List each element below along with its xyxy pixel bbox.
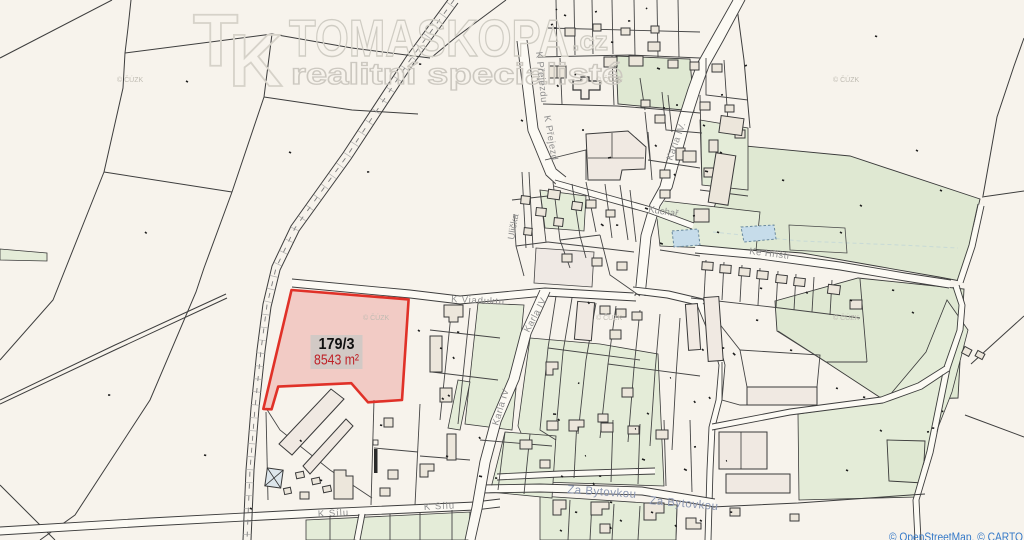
svg-text:© ČÚZK: © ČÚZK — [596, 75, 622, 84]
svg-text:© ČÚZK: © ČÚZK — [117, 75, 143, 84]
svg-text:179/3: 179/3 — [319, 336, 355, 353]
svg-text:© ČÚZK: © ČÚZK — [363, 313, 389, 322]
svg-text:.cz: .cz — [572, 26, 608, 56]
svg-text:8543 m²: 8543 m² — [314, 352, 359, 369]
svg-text:© ČÚZK: © ČÚZK — [833, 75, 859, 84]
svg-text:K Sílu: K Sílu — [424, 500, 456, 513]
svg-text:K: K — [229, 19, 282, 102]
svg-text:K Sílu: K Sílu — [318, 507, 350, 520]
svg-text:© ČÚZK: © ČÚZK — [833, 313, 859, 322]
svg-text:© OpenStreetMap, © CARTO: © OpenStreetMap, © CARTO — [889, 532, 1023, 540]
svg-text:realitní specialisté: realitní specialisté — [291, 58, 623, 91]
svg-text:© ČÚZK: © ČÚZK — [596, 313, 622, 322]
